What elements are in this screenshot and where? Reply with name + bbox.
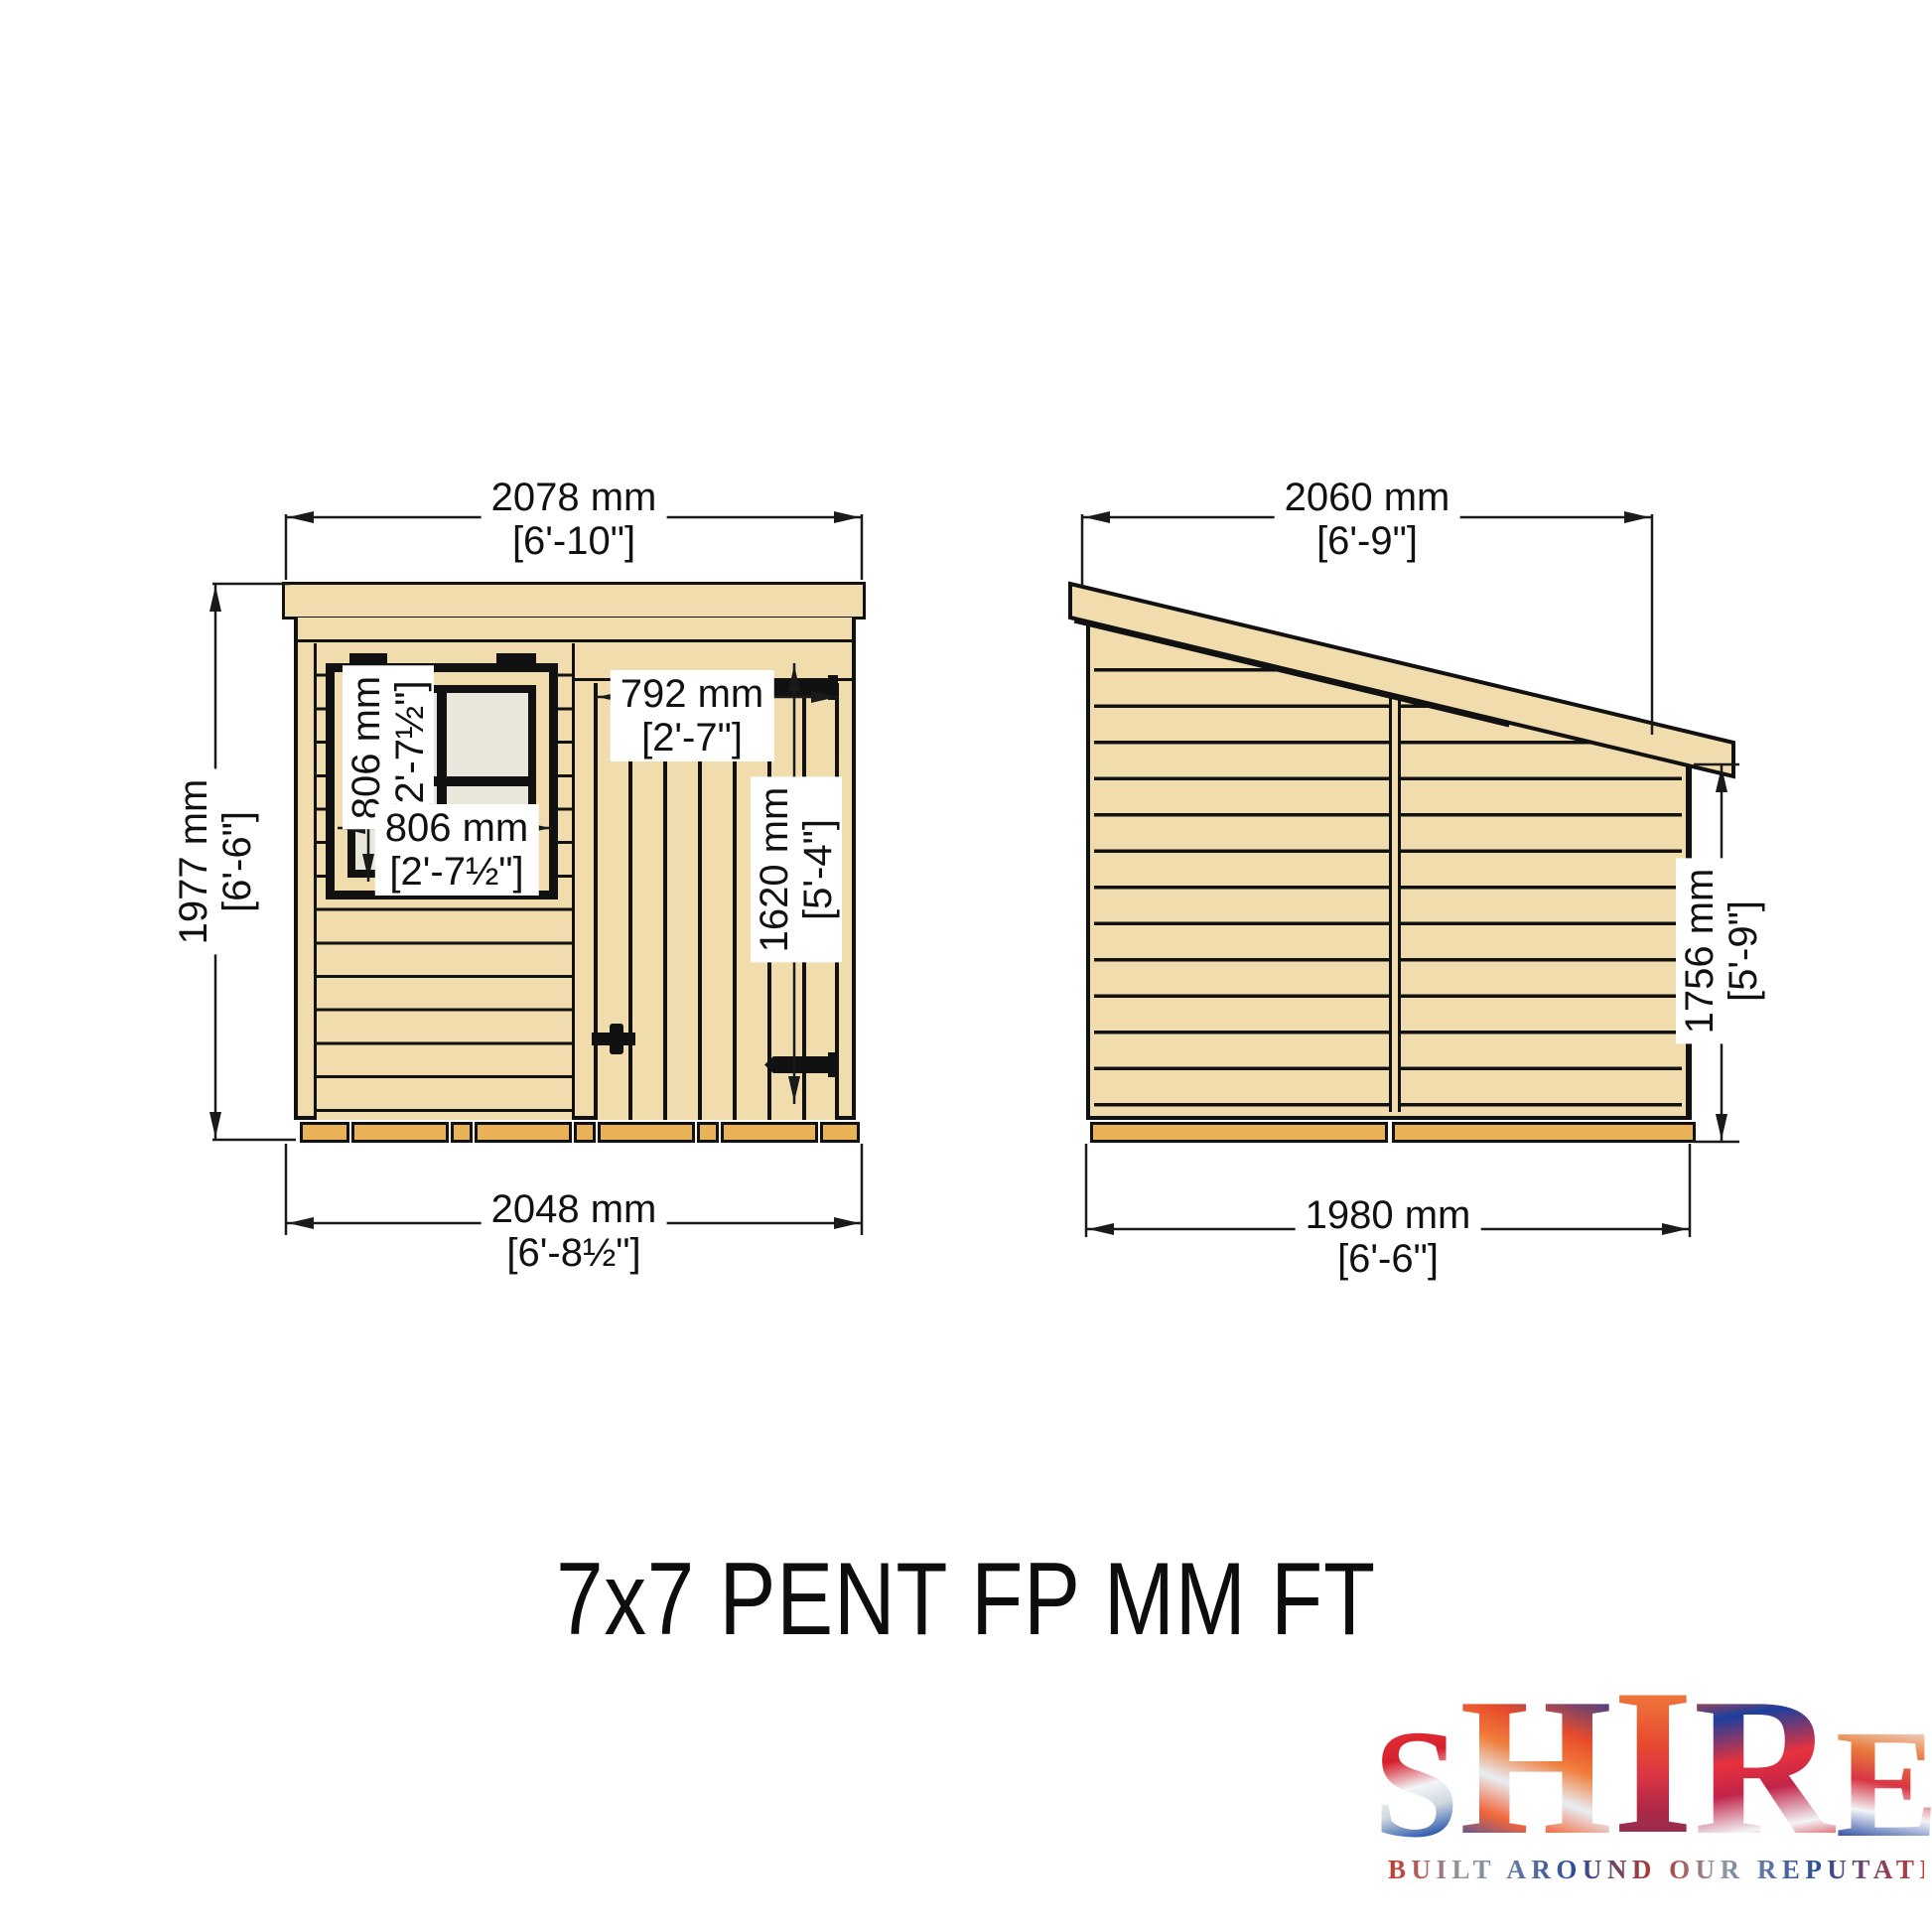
window-width-dimension: 806 mm[2'-7½"] — [375, 804, 539, 896]
logo-letter: R — [1694, 1691, 1836, 1844]
drawing-title: 7x7 PENT FP MM FT — [556, 1541, 1376, 1659]
side-width-dimension: 2060 mm[6'-9"] — [1275, 474, 1460, 565]
front-width-dimension: 2078 mm[6'-10"] — [482, 474, 667, 565]
logo-tagline: BUILT AROUND OUR REPUTATION — [1388, 1855, 1924, 1885]
front-height-dimension: 1977 mm[6'-6"] — [170, 769, 261, 955]
door-height-dimension: 1620 mm[5'-4"] — [751, 777, 842, 963]
side-height-dimension: 1756 mm[5'-9"] — [1676, 859, 1767, 1044]
shed-dimension-drawing: 2078 mm[6'-10"] 1977 mm[6'-6"] 2048 mm[6… — [0, 0, 1932, 1932]
door-width-dimension: 792 mm[2'-7"] — [611, 670, 774, 761]
side-roof-pent — [1070, 584, 1733, 776]
logo-letter: E — [1836, 1724, 1932, 1845]
logo-letter: I — [1612, 1682, 1694, 1845]
logo-letter: S — [1373, 1724, 1459, 1845]
side-base-dimension: 1980 mm[6'-6"] — [1296, 1191, 1481, 1283]
logo-letter: H — [1459, 1691, 1612, 1844]
shire-logo: S H I R E BUILT AROUND OUR REPUTATION — [1388, 1682, 1924, 1885]
front-base-dimension: 2048 mm[6'-8½"] — [482, 1185, 667, 1277]
shire-logo-wordmark: S H I R E — [1388, 1682, 1924, 1845]
